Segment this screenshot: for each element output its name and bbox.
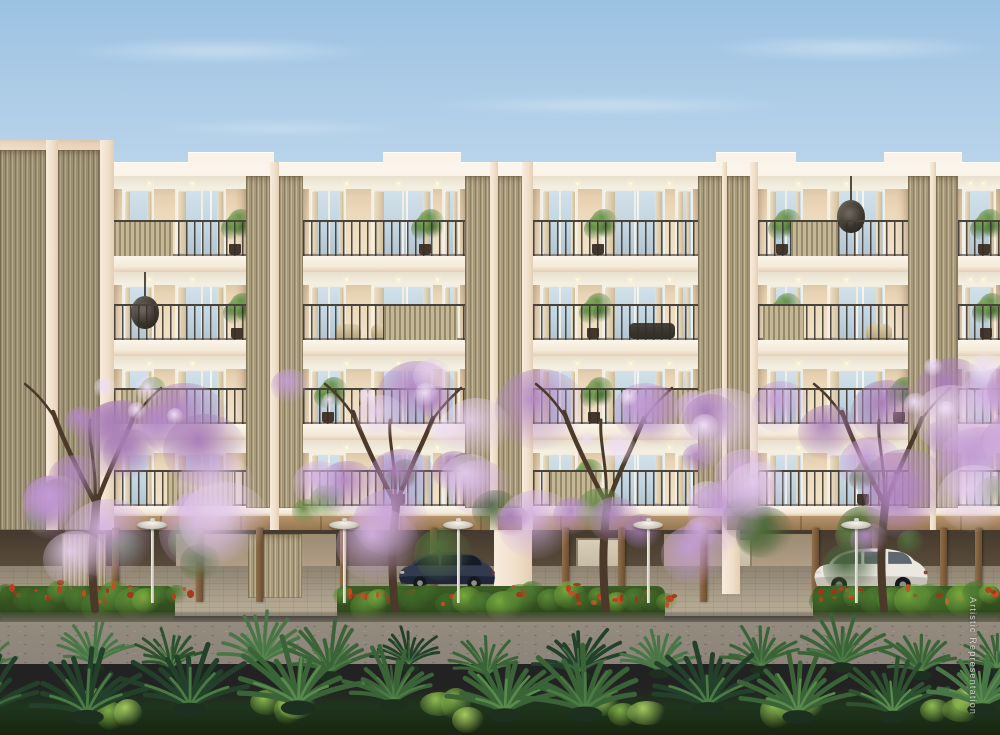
foreground-palms [0, 0, 1000, 735]
palm-rosettes [0, 600, 1000, 735]
architectural-rendering: Artistic Representation [0, 0, 1000, 735]
watermark-text: Artistic Representation [968, 597, 978, 717]
